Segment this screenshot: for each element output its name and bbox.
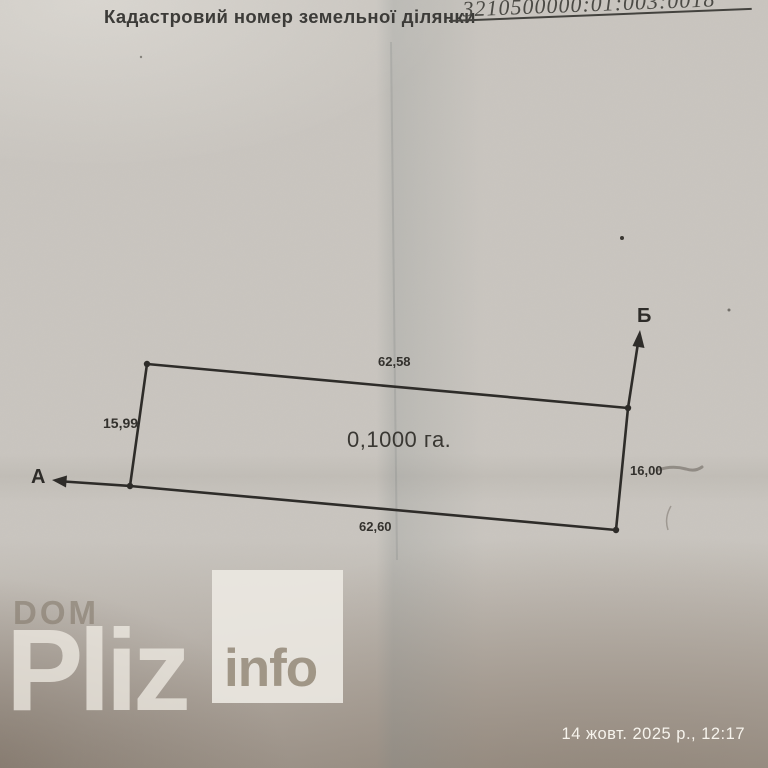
point-label-a: А [31,466,45,489]
direction-arrow-a [52,476,130,488]
arrowhead-left-icon [52,476,67,488]
photo-of-cadastral-document: { "document": { "header_label": "Кадастр… [0,0,768,768]
dimension-left: 15,99 [103,415,138,431]
dimension-top: 62,58 [378,354,411,369]
watermark-info-badge: info [212,570,343,703]
watermark-badge-text: info [224,638,317,699]
direction-arrow-b [628,330,645,408]
arrowhead-up-icon [633,330,645,348]
area-label: 0,1000 га. [347,427,451,453]
point-label-b: Б [637,305,651,328]
paper-specks [140,56,731,312]
photo-timestamp: 14 жовт. 2025 р., 12:17 [562,725,745,744]
dimension-right: 16,00 [630,463,663,478]
pencil-smudge [658,467,702,470]
small-crease-mark [667,506,671,530]
dimension-bottom: 62,60 [359,519,392,534]
watermark-brand-main: Pliz [6,612,186,728]
paper-crease-line [391,42,397,560]
